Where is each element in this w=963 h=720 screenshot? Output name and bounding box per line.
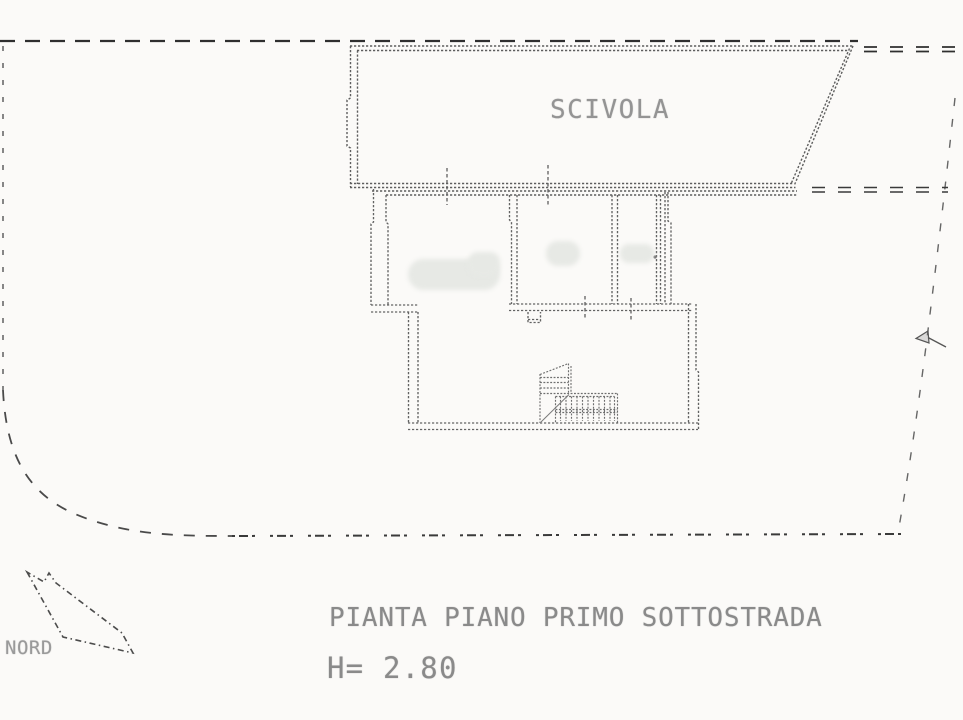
boundary-right-dashed-line xyxy=(899,98,955,527)
wall-lines xyxy=(371,189,699,430)
erased-text-smudge xyxy=(468,252,500,276)
staircase xyxy=(540,364,618,424)
plan-title: PIANTA PIANO PRIMO SOTTOSTRADA xyxy=(329,603,823,633)
survey-marker-icon xyxy=(916,331,946,347)
north-label: NORD xyxy=(5,637,53,659)
room-label-scivola: SCIVOLA xyxy=(550,95,670,125)
scanned-floor-plan-page: SCIVOLA PIANTA PIANO PRIMO SOTTOSTRADA H… xyxy=(0,0,963,720)
survey-marker-head xyxy=(916,331,929,343)
stair-treads xyxy=(540,364,618,424)
wall-tick-marks xyxy=(447,165,631,320)
wall-projection-dashes-mid xyxy=(812,188,948,193)
wall-projection-dashes-top xyxy=(864,47,963,52)
boundary-bottom-dashed-line xyxy=(232,534,903,536)
erased-text-smudge xyxy=(620,244,654,263)
scan-artifact-dot xyxy=(653,255,656,258)
plan-height-note: H= 2.80 xyxy=(327,651,458,685)
boundary-curve-dashed-line xyxy=(3,390,232,536)
erased-text-smudge xyxy=(546,241,580,266)
interior-walls xyxy=(371,165,699,430)
survey-marker-tail xyxy=(928,338,946,348)
